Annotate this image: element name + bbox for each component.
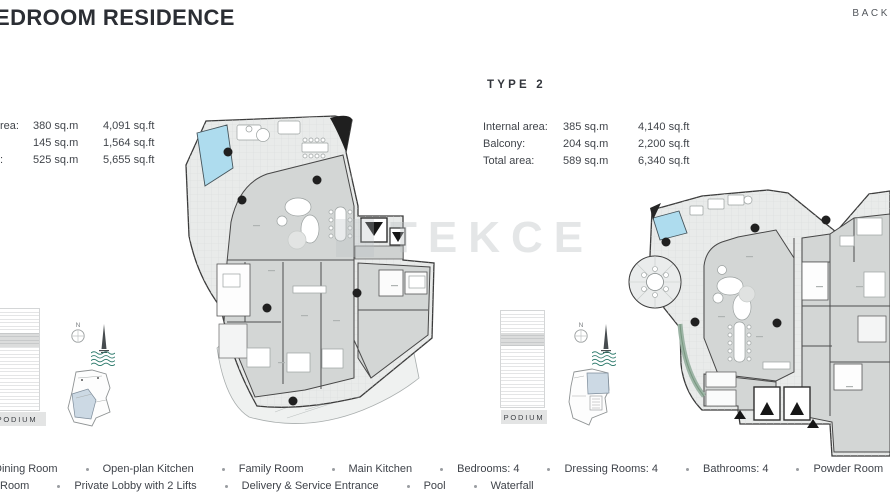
area-sqm: 204 sq.m	[563, 138, 608, 150]
legend-item: Delivery & Service Entrance	[242, 480, 379, 492]
legend-item: Private Lobby with 2 Lifts	[74, 480, 196, 492]
podium-label-type1: PODIUM	[0, 412, 46, 426]
waves-icon	[592, 351, 616, 366]
area-sqft: 4,140 sq.ft	[638, 121, 689, 133]
floor-highlight-band	[501, 333, 544, 346]
legend-item: Main Kitchen	[349, 463, 413, 475]
tower-elevation-type2	[500, 310, 545, 408]
spire-icon	[600, 324, 612, 354]
dot-separator	[57, 485, 60, 488]
area-sqm: 380 sq.m	[33, 120, 78, 132]
legend-item: Pool	[424, 480, 446, 492]
dot-separator	[225, 485, 228, 488]
waves-icon	[91, 351, 115, 366]
dot-separator	[547, 468, 550, 471]
floor-plan-type2	[626, 166, 890, 466]
area-sqft: 4,091 sq.ft	[103, 120, 154, 132]
area-label: Total area:	[483, 155, 534, 167]
dot-separator	[474, 485, 477, 488]
dot-separator	[86, 468, 89, 471]
compass-icon: N	[573, 322, 589, 345]
page: EDROOM RESIDENCE BACK rea: 380 sq.m 4,09…	[0, 0, 890, 500]
area-sqft: 5,655 sq.ft	[103, 154, 154, 166]
dot-separator	[332, 468, 335, 471]
dot-separator	[407, 485, 410, 488]
key-plan-type1	[62, 368, 114, 430]
area-sqm: 525 sq.m	[33, 154, 78, 166]
legend-item: Bedrooms: 4	[457, 463, 519, 475]
tower-elevation-type1	[0, 308, 40, 411]
page-title: EDROOM RESIDENCE	[0, 5, 235, 31]
spire-icon	[98, 324, 110, 354]
legend-item: Open-plan Kitchen	[103, 463, 194, 475]
legend-item: Room	[0, 480, 29, 492]
key-plan-type2	[562, 366, 614, 428]
back-button[interactable]: BACK	[852, 8, 890, 19]
round-terrace	[629, 256, 681, 308]
type2-heading: TYPE 2	[487, 79, 546, 91]
area-label: :	[0, 154, 3, 166]
legend-item: Family Room	[239, 463, 304, 475]
area-label: Balcony:	[483, 138, 525, 150]
podium-label-type2: PODIUM	[501, 410, 547, 424]
legend-row-2: Room Private Lobby with 2 Lifts Delivery…	[0, 480, 534, 492]
dot-separator	[796, 468, 799, 471]
floor-highlight-band	[0, 333, 39, 347]
area-sqft: 1,564 sq.ft	[103, 137, 154, 149]
dot-separator	[686, 468, 689, 471]
area-sqft: 2,200 sq.ft	[638, 138, 689, 150]
area-label: Internal area:	[483, 121, 548, 133]
area-sqm: 145 sq.m	[33, 137, 78, 149]
compass-icon: N	[70, 322, 86, 345]
dot-separator	[440, 468, 443, 471]
area-sqm: 589 sq.m	[563, 155, 608, 167]
area-sqm: 385 sq.m	[563, 121, 608, 133]
legend-item: Dining Room	[0, 463, 58, 475]
area-label: rea:	[0, 120, 19, 132]
legend-item: Waterfall	[491, 480, 534, 492]
dot-separator	[222, 468, 225, 471]
floor-plan-type1	[183, 110, 443, 435]
